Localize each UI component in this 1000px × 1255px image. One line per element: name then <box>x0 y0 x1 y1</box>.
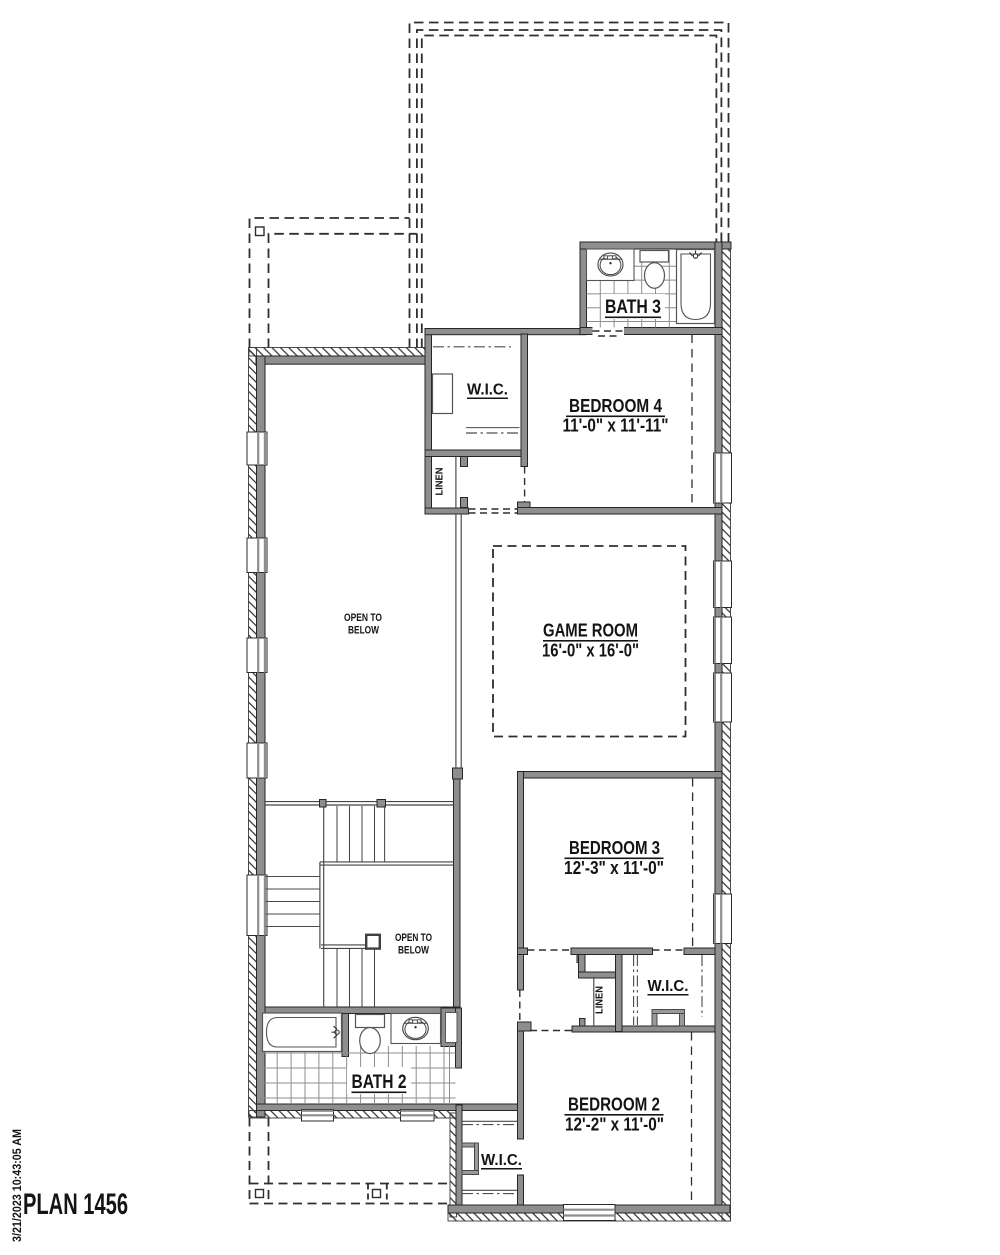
svg-text:PLAN 1456: PLAN 1456 <box>23 1188 128 1221</box>
svg-text:BATH 2: BATH 2 <box>352 1072 407 1093</box>
svg-text:BELOW: BELOW <box>398 945 429 957</box>
svg-text:11'-0" x 11'-11": 11'-0" x 11'-11" <box>563 416 669 436</box>
svg-text:12'-2" x 11'-0": 12'-2" x 11'-0" <box>565 1115 664 1135</box>
svg-text:BELOW: BELOW <box>348 625 379 637</box>
svg-text:W.I.C.: W.I.C. <box>467 382 508 399</box>
svg-text:12'-3" x 11'-0": 12'-3" x 11'-0" <box>564 858 664 878</box>
svg-text:GAME ROOM: GAME ROOM <box>543 621 638 641</box>
svg-text:BEDROOM 3: BEDROOM 3 <box>569 838 660 858</box>
svg-text:3/21/2023 10:43:05 AM: 3/21/2023 10:43:05 AM <box>10 1129 24 1242</box>
svg-text:OPEN TO: OPEN TO <box>395 932 432 944</box>
svg-text:LINEN: LINEN <box>594 986 606 1014</box>
svg-text:BATH 3: BATH 3 <box>605 297 661 318</box>
svg-text:LINEN: LINEN <box>434 468 446 496</box>
svg-text:BEDROOM 4: BEDROOM 4 <box>569 396 662 416</box>
svg-text:W.I.C.: W.I.C. <box>481 1152 522 1169</box>
svg-text:OPEN TO: OPEN TO <box>344 612 382 624</box>
svg-text:16'-0" x 16'-0": 16'-0" x 16'-0" <box>542 641 639 661</box>
svg-text:W.I.C.: W.I.C. <box>648 978 689 995</box>
svg-text:BEDROOM 2: BEDROOM 2 <box>568 1095 660 1115</box>
